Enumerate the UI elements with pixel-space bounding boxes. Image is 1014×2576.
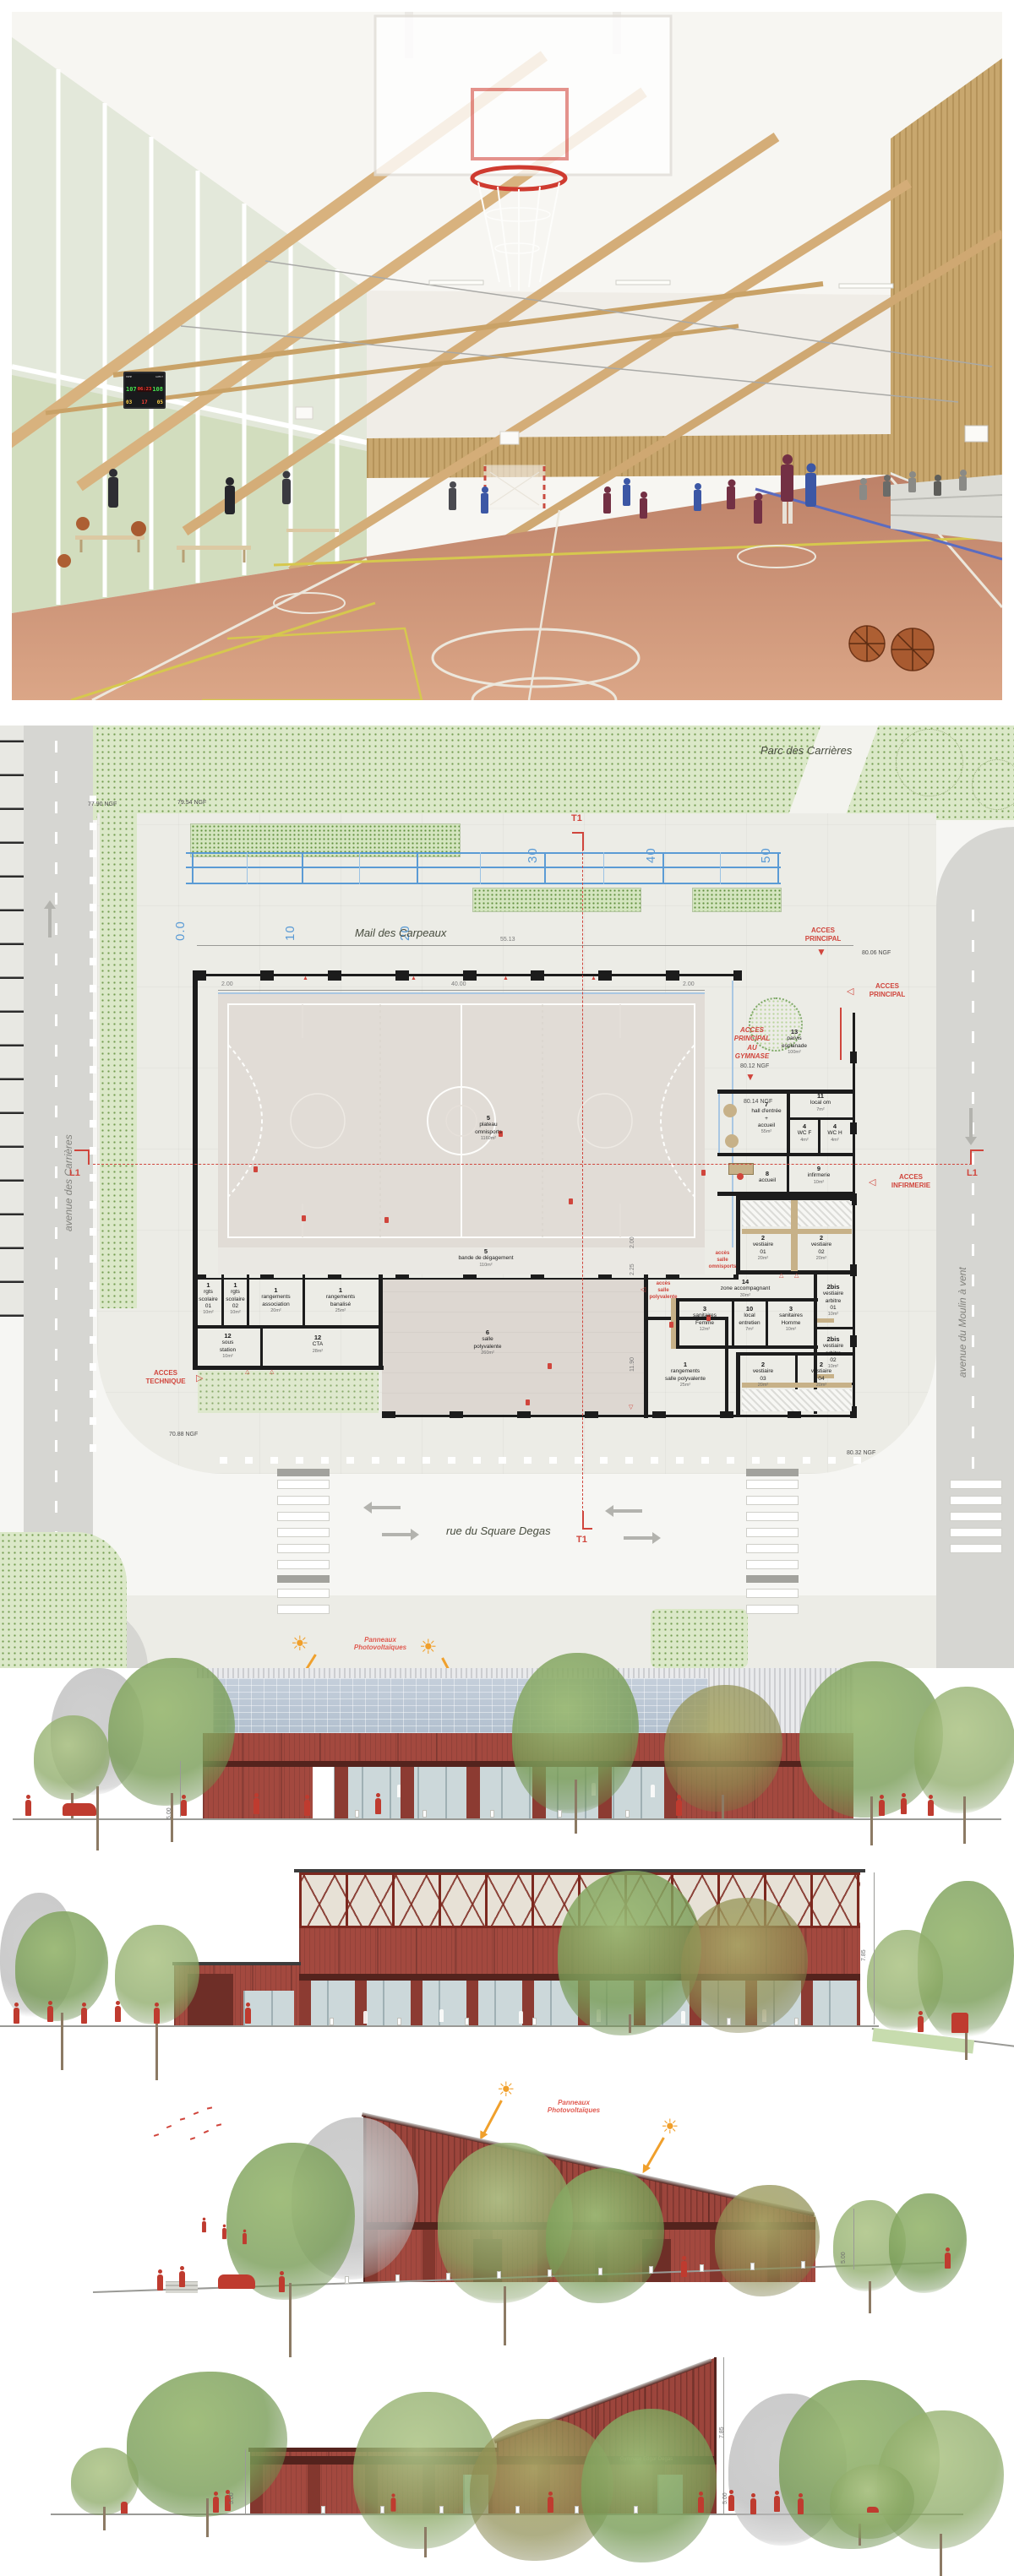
dim-200-right: 2.00: [683, 981, 695, 987]
person-silhouette: [391, 2497, 396, 2511]
t1-mark: [582, 1528, 592, 1530]
dim-tick: [853, 2209, 854, 2269]
room-rgts-scolaire-01: 1rgts scolaire 0110m²: [195, 1281, 221, 1316]
person-silhouette: [750, 2498, 756, 2514]
scoreboard-guest-label: GUEST: [155, 375, 163, 378]
person-silhouette: [928, 1800, 934, 1816]
room-zone-accompagnant: 14zone accompagnant30m²: [686, 1278, 804, 1298]
avenue-right-label: avenue du Moulin à vent: [957, 1267, 968, 1378]
equipment-mark: [569, 1198, 573, 1204]
south-wall: [382, 1411, 855, 1418]
t1-mark: [582, 832, 584, 851]
person-silhouette: [304, 1800, 310, 1816]
wing-glazing: [243, 1991, 294, 2025]
person-silhouette: [47, 2006, 53, 2022]
wall: [818, 1117, 820, 1155]
bollard: [649, 2266, 653, 2274]
person-silhouette: [222, 2228, 226, 2239]
acces-triangle: ◁: [847, 987, 853, 997]
person-silhouette: [901, 1798, 907, 1814]
scoreboard-home-score: 107: [126, 386, 137, 393]
gym-interior-rendering: HOME GUEST 107 06:23 108 03 17 05: [12, 12, 1002, 700]
dim-225: 2.25: [630, 1264, 635, 1275]
sun-arrow: [646, 2137, 665, 2167]
level-7790: 77.90 NGF: [88, 802, 117, 807]
person-silhouette: [918, 2016, 924, 2032]
room-sanitaires-homme: 3sanitaires Homme10m²: [767, 1305, 815, 1333]
mid-wall: [193, 1274, 739, 1280]
acces-principal-right: ACCES PRINCIPAL: [857, 982, 918, 1000]
dim-tick: [245, 2449, 246, 2514]
hydrant-red: [121, 2502, 128, 2514]
parking-strip-ticks: [0, 726, 24, 1317]
bollard: [422, 1810, 427, 1818]
bollard: [634, 2506, 638, 2514]
door-mark: △: [794, 1273, 799, 1279]
door-mark: ▲: [411, 976, 417, 981]
red-bin: [951, 2013, 968, 2033]
room-vestiaire-arbitre-01: 2bisvestiaire arbitre 0110m²: [814, 1283, 853, 1318]
scale-tick-50: 50: [759, 847, 773, 863]
dim-1190: 11.90: [630, 1357, 635, 1372]
road-arrow-down: [969, 1108, 973, 1137]
door-mark: ▲: [591, 976, 597, 981]
road-center-dashes: [55, 726, 57, 1604]
scale-tick-30: 30: [526, 847, 540, 863]
bollard-row-left: [90, 776, 96, 1452]
crosswalk: [746, 1480, 799, 1576]
l1-mark: [970, 1149, 984, 1151]
scoreboard-guest-score: 108: [152, 386, 163, 393]
dog-red: [867, 2507, 879, 2513]
bird: [154, 2133, 159, 2137]
bollard: [575, 2506, 579, 2514]
room-cta: 12CTA28m²: [279, 1334, 357, 1354]
section-l1-right: L1: [967, 1168, 978, 1178]
room-vestiaire-02: 2vestiaire 0220m²: [799, 1234, 843, 1262]
acces-triangle: ◁: [869, 1178, 875, 1187]
scale-tick-0: 0.0: [173, 921, 188, 941]
pv-label: Panneaux Photovoltaïques: [537, 2099, 610, 2114]
acces-triangle: ▷: [196, 1374, 203, 1383]
dim-785: 7.85: [719, 2427, 725, 2438]
scoreboard-home-label: HOME: [126, 375, 132, 378]
door-mark: ▲: [503, 976, 509, 981]
equipment-mark: [384, 1217, 389, 1223]
dim-tick: [180, 1761, 181, 1817]
bollard: [515, 2506, 520, 2514]
showers: [742, 1389, 852, 1411]
acces-salle-polyvalente: accès salle polyvalente: [649, 1281, 678, 1301]
rue-label: rue du Square Degas: [446, 1524, 551, 1537]
person-silhouette: [243, 2233, 247, 2244]
section-l1-left: L1: [69, 1168, 80, 1178]
bollard: [395, 2274, 400, 2282]
bollard: [794, 2018, 799, 2025]
bollard: [397, 2018, 401, 2025]
room-local-entretien: 10local entretien7m²: [732, 1305, 767, 1333]
wall: [676, 1345, 818, 1349]
person-silhouette: [681, 2261, 687, 2277]
bollard: [330, 2018, 334, 2025]
elevation-2-trusses: 7.85: [0, 1862, 1014, 2061]
bird: [204, 2130, 209, 2133]
equipment-mark: [302, 1215, 306, 1221]
person-silhouette: [698, 2497, 704, 2513]
bollard: [321, 2506, 325, 2514]
room-rangements-salle-poly: 1rangements salle polyvalente25m²: [647, 1361, 723, 1389]
acces-principal-top: ACCES PRINCIPAL: [793, 927, 853, 944]
traffic-arrow-left: [372, 1506, 401, 1509]
dim-500: 5.00: [722, 2492, 728, 2504]
wall: [379, 1274, 383, 1369]
level-8032: 80.32 NGF: [847, 1450, 875, 1456]
dim-200-v: 2.00: [630, 1236, 635, 1248]
north-wall: [193, 970, 742, 981]
figure-white: [439, 2009, 444, 2022]
room-local-om: 11local om7m²: [794, 1092, 847, 1112]
wall: [736, 1352, 740, 1416]
dim-200-left: 2.00: [221, 981, 233, 987]
sun-icon: ☀: [291, 1634, 309, 1655]
level-7088: 70.88 NGF: [169, 1432, 198, 1437]
traffic-arrow-right: [624, 1536, 652, 1540]
room-rangements-association: 1rangements association20m²: [250, 1286, 302, 1314]
crosswalk-cap: [746, 1575, 799, 1583]
person-silhouette: [774, 2496, 780, 2512]
person-silhouette: [879, 1800, 885, 1816]
scoreboard-clock: 06:23: [137, 387, 153, 392]
elevation-1-pv: Panneaux Photovoltaïques ☀ ☀ 5.00: [0, 1634, 1014, 1837]
acces-principal-gymnase: ACCES PRINCIPAL AU GYMNASE: [722, 1026, 782, 1062]
acces-gymnase-level: 80.12 NGF: [740, 1063, 769, 1069]
acces-technique: ACCES TECHNIQUE: [135, 1369, 196, 1387]
dim-line: [197, 945, 853, 946]
room-vestiaire-04: 2vestiaire 0420m²: [799, 1361, 843, 1389]
acces-salle-omnisports: accès salle omnisports: [708, 1251, 737, 1270]
bollard: [558, 1810, 562, 1818]
room-wc-f: 4WC F4m²: [791, 1122, 818, 1143]
door-mark: ▲: [303, 976, 308, 981]
bollard: [598, 2268, 602, 2275]
hall-table: [725, 1134, 739, 1148]
wall: [814, 1327, 855, 1329]
bollard: [465, 2018, 469, 2025]
bollard: [727, 2018, 731, 2025]
person-silhouette: [115, 2006, 121, 2022]
bollard-row-south: [220, 1457, 862, 1464]
dim-500: 5.00: [841, 2252, 847, 2264]
bollard: [355, 1810, 359, 1818]
scoreboard: HOME GUEST 107 06:23 108 03 17 05: [123, 372, 166, 409]
person-silhouette: [181, 1800, 187, 1816]
t1-mark: [572, 832, 582, 834]
room-salle-polyvalente: 6salle polyvalente260m²: [445, 1329, 530, 1356]
bird: [194, 2111, 199, 2115]
person-silhouette: [245, 2008, 251, 2024]
traffic-arrow-left: [613, 1509, 642, 1513]
person-silhouette: [179, 2271, 185, 2287]
level-8014: 80.14 NGF: [744, 1099, 772, 1105]
figure-white: [519, 2011, 523, 2024]
scoreboard-fouls: 17: [141, 399, 147, 405]
dim-500: 5.00: [229, 2492, 235, 2504]
door-mark: △: [245, 1369, 249, 1375]
park-label: Parc des Carrières: [760, 744, 852, 757]
road-center-dashes: [972, 894, 974, 1469]
acces-triangle: ▼: [745, 1072, 755, 1082]
elevation-4-monopitch: Gymnase Edgar Degas 7.85 5.00 5.00: [0, 2348, 1014, 2535]
dim-line: [218, 990, 705, 991]
crosswalk-cap: [746, 1469, 799, 1476]
dim-785: 7.85: [861, 1949, 867, 1961]
sun-arrow: [483, 2100, 503, 2133]
room-bande-degagement: 5bande de dégagement110m²: [431, 1247, 541, 1268]
court-edge: [218, 992, 705, 994]
avenue-left-label: avenue des Carrières: [63, 1134, 74, 1231]
bench: [817, 1318, 834, 1323]
room-vestiaire-01: 2vestiaire 0120m²: [741, 1234, 785, 1262]
dim-5513: 55.13: [500, 937, 515, 943]
road-arrow-up: [48, 909, 52, 937]
l1-mark: [88, 1149, 90, 1165]
scale-bar: [186, 852, 781, 886]
equipment-mark: [526, 1399, 530, 1405]
bird: [180, 2117, 185, 2120]
architecture-presentation-board: { "photo": { "scoreboard": {"home_label"…: [0, 0, 1014, 2535]
dim-4000: 40.00: [451, 981, 466, 987]
technical-courtyard: [198, 1371, 379, 1413]
person-silhouette: [157, 2274, 163, 2291]
bollard: [497, 2271, 501, 2279]
room-wc-h: 4WC H4m²: [821, 1122, 848, 1143]
l1-mark: [970, 1149, 972, 1165]
door-mark: △: [270, 1369, 274, 1375]
figure-white: [363, 2011, 368, 2024]
bird: [216, 2123, 221, 2126]
figure-white: [681, 2011, 685, 2024]
scoreboard-period: 05: [157, 399, 163, 405]
wall: [193, 1325, 383, 1329]
wall: [676, 1298, 818, 1302]
bollard: [625, 1810, 630, 1818]
red-wall-line: [840, 1008, 842, 1060]
dim-500: 5.00: [166, 1807, 172, 1819]
section-t1-bottom: T1: [576, 1535, 587, 1545]
person-silhouette: [279, 2276, 285, 2292]
bollard: [439, 2506, 444, 2514]
room-rangements-banalise: 1rangements banalisé25m²: [303, 1286, 378, 1314]
site-plan: Parc des Carrières avenue des Carrières …: [0, 726, 1014, 1668]
bollard: [345, 2276, 349, 2284]
sun-icon: ☀: [497, 2080, 515, 2100]
person-silhouette: [81, 2008, 87, 2024]
person-silhouette: [154, 2008, 160, 2024]
person-silhouette: [676, 1800, 682, 1816]
bollard: [446, 2273, 450, 2280]
acces-triangle: ▼: [816, 947, 826, 957]
equipment-mark: [253, 1166, 258, 1172]
ground-line: [13, 1818, 1001, 1820]
person-silhouette: [728, 2495, 734, 2511]
gym-interior-art: [12, 12, 1002, 700]
person-silhouette: [945, 2253, 951, 2269]
bollard: [532, 2018, 537, 2025]
bollard: [490, 1810, 494, 1818]
traffic-arrow-right: [382, 1533, 411, 1536]
person-silhouette: [25, 1800, 31, 1816]
mail-label: Mail des Carpeaux: [355, 927, 446, 939]
bird: [207, 2106, 212, 2109]
person-silhouette: [548, 2497, 553, 2513]
room-vestiaire-03: 2vestiaire 0320m²: [741, 1361, 785, 1389]
person-silhouette: [798, 2498, 804, 2514]
door-mark: △: [779, 1273, 783, 1279]
hedge: [692, 888, 782, 912]
bollard: [801, 2261, 805, 2269]
elevation-3-monopitch: ☀ ☀ Panneaux Photovoltaïques 5.00: [0, 2073, 1014, 2318]
level-8006: 80.06 NGF: [862, 950, 891, 956]
wall: [260, 1325, 263, 1369]
person-silhouette: [375, 1798, 381, 1814]
crosswalk: [277, 1480, 330, 1576]
car-red: [218, 2274, 255, 2289]
crosswalk: [746, 1589, 799, 1621]
pv-label: Panneaux Photovoltaïques: [346, 1636, 414, 1651]
level-7954: 79.54 NGF: [177, 800, 206, 806]
hall-glass-line: [718, 1094, 720, 1153]
dim-tick: [874, 1872, 875, 2024]
l1-mark: [74, 1149, 88, 1151]
bollard: [548, 2269, 552, 2277]
room-sous-station: 12sous station10m²: [200, 1332, 255, 1360]
crosswalk-right-road: [950, 1480, 1002, 1560]
bird: [190, 2137, 195, 2140]
equipment-mark: [548, 1363, 552, 1369]
room-rgts-scolaire-02: 1rgts scolaire 0210m²: [222, 1281, 248, 1316]
room-infirmerie: 9infirmerie10m²: [793, 1165, 845, 1185]
crosswalk-cap: [277, 1575, 330, 1583]
crosswalk: [277, 1589, 330, 1621]
car-red: [63, 1803, 96, 1816]
t1-section-line: [582, 832, 583, 1513]
room-accueil: 8accueil: [742, 1170, 793, 1185]
park-tree-outline: [896, 729, 963, 796]
scoreboard-bonus: 03: [126, 399, 132, 405]
avenue-des-carrieres-road: [24, 726, 93, 1612]
room-plateau-omnisports: 5plateau omnisports1160m²: [450, 1114, 526, 1142]
bollard: [700, 2264, 704, 2272]
section-t1-top: T1: [571, 813, 582, 823]
room-sanitaires-femme: 3sanitaires Femme12m²: [679, 1305, 730, 1333]
person-silhouette: [14, 2008, 19, 2024]
door-mark: ▽: [629, 1405, 633, 1410]
person-silhouette: [213, 2497, 219, 2513]
wall: [193, 1366, 384, 1370]
equipment-mark: [669, 1322, 673, 1328]
salle-east-wall: [644, 1274, 648, 1418]
scale-tick-10: 10: [283, 925, 297, 941]
t1-mark: [582, 1511, 584, 1530]
sun-icon: ☀: [419, 1638, 438, 1658]
hedge: [472, 888, 641, 912]
bench: [791, 1200, 798, 1271]
crosswalk-cap: [277, 1469, 330, 1476]
equipment-mark: [701, 1170, 706, 1176]
sun-icon: ☀: [661, 2117, 679, 2138]
bollard: [380, 2506, 384, 2514]
person-silhouette: [253, 1798, 259, 1814]
person-silhouette: [202, 2221, 206, 2232]
acces-triangle: ◁: [641, 1286, 646, 1293]
scale-tick-40: 40: [644, 847, 658, 863]
verge-green: [100, 726, 137, 1308]
bollard: [750, 2263, 755, 2270]
acces-infirmerie: ACCES INFIRMERIE: [879, 1173, 943, 1191]
bird: [166, 2125, 172, 2128]
